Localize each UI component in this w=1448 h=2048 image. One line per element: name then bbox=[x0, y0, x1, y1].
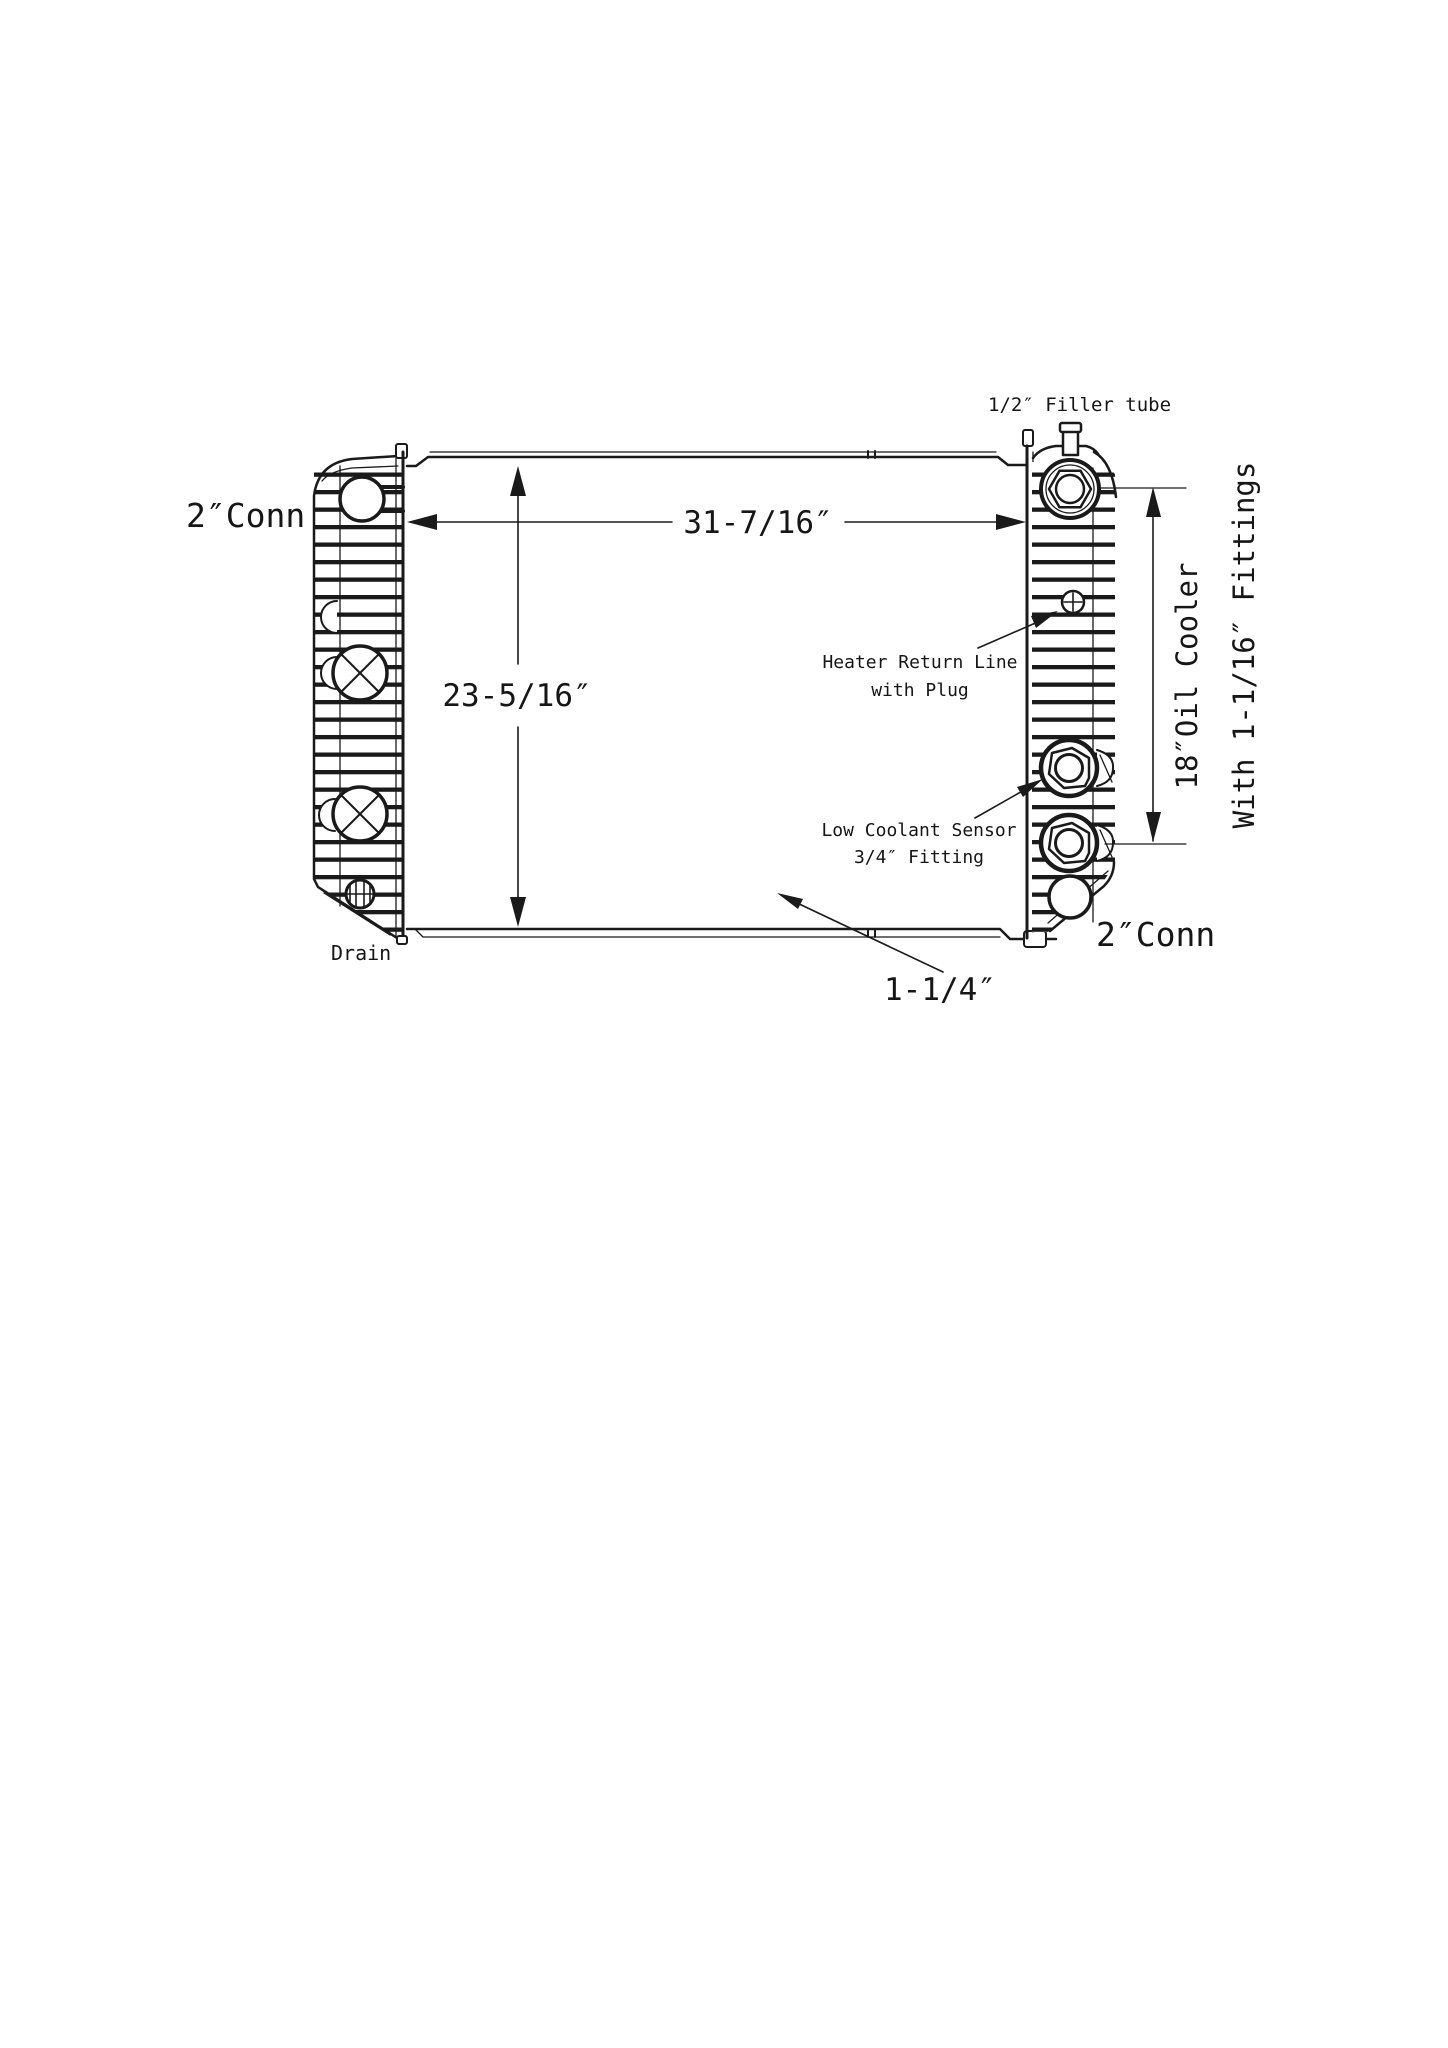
top-left-2in-connection bbox=[340, 477, 384, 521]
arrowhead-up bbox=[1146, 487, 1161, 517]
label-drain: Drain bbox=[331, 941, 391, 965]
core-top-edge bbox=[407, 457, 1026, 466]
x-connection-upper bbox=[333, 646, 387, 700]
label-low-coolant-line1: Low Coolant Sensor bbox=[821, 820, 1016, 841]
arrowhead-left bbox=[407, 514, 437, 530]
x-connection-lower bbox=[333, 787, 387, 841]
dimension-core-width: 31-7/16″ bbox=[407, 505, 1026, 541]
label-bottom-right-conn: 2″Conn bbox=[1096, 915, 1215, 954]
arrowhead-up bbox=[510, 466, 526, 496]
label-top-left-conn: 2″Conn bbox=[186, 496, 305, 535]
label-filler-tube: 1/2″ Filler tube bbox=[988, 394, 1171, 416]
label-bottom-tube-size: 1-1/4″ bbox=[884, 972, 996, 1008]
label-oil-cooler-vertical: 18″Oil Cooler bbox=[1170, 563, 1204, 790]
core-bottom-left-post bbox=[397, 936, 407, 944]
bottom-right-2in-connection bbox=[1049, 876, 1091, 918]
heater-return-plug bbox=[1062, 591, 1084, 613]
leader-core-thickness bbox=[777, 893, 943, 972]
left-tank bbox=[314, 456, 403, 938]
radiator-technical-drawing: 31-7/16″ 23-5/16″ 2″Conn 1/2″ Filler tub… bbox=[0, 0, 1448, 2048]
drain-plug bbox=[346, 880, 374, 908]
dimension-height-label: 23-5/16″ bbox=[442, 678, 591, 714]
right-tank bbox=[1032, 423, 1125, 932]
filler-tube-cap bbox=[1060, 423, 1081, 432]
radiator-drawing-page: 31-7/16″ 23-5/16″ 2″Conn 1/2″ Filler tub… bbox=[0, 0, 1448, 2048]
label-oil-cooler-fittings-vertical: With 1-1/16″ Fittings bbox=[1227, 462, 1261, 829]
core-right-post bbox=[1023, 430, 1033, 446]
dimension-width-label: 31-7/16″ bbox=[683, 505, 832, 541]
arrowhead-down bbox=[1146, 812, 1161, 842]
label-heater-return-line1: Heater Return Line bbox=[822, 652, 1017, 673]
arrowhead-down bbox=[510, 897, 526, 927]
label-low-coolant-line2: 3/4″ Fitting bbox=[854, 847, 984, 868]
label-heater-return-line2: with Plug bbox=[871, 680, 969, 701]
dimension-core-height: 23-5/16″ bbox=[442, 466, 591, 927]
arrowhead-right bbox=[996, 514, 1026, 530]
